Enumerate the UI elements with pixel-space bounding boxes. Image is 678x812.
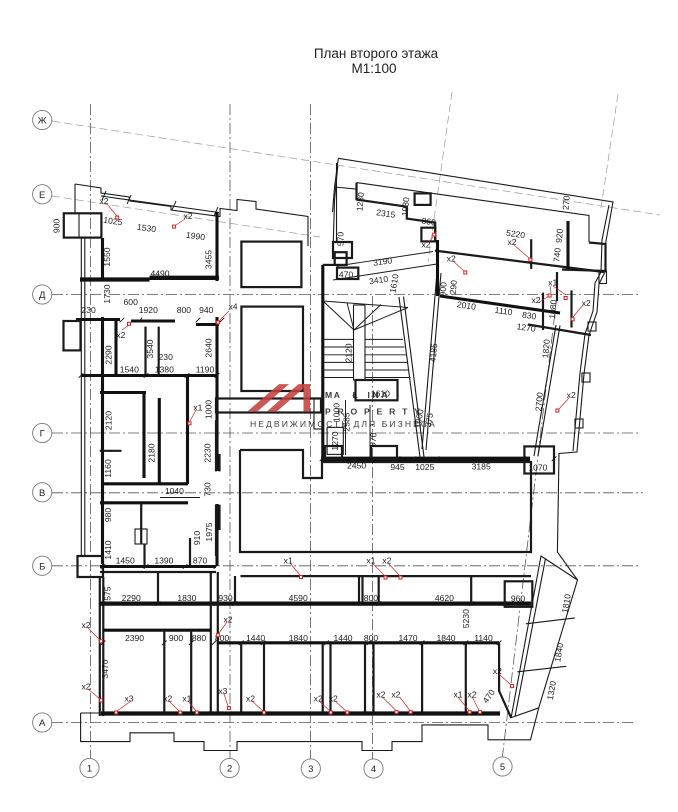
svg-text:2230: 2230 [203, 443, 213, 462]
svg-text:М1:100: М1:100 [351, 61, 396, 76]
svg-text:1470: 1470 [398, 633, 417, 643]
svg-text:x2: x2 [582, 298, 591, 308]
svg-text:1160: 1160 [103, 459, 113, 478]
svg-text:1280: 1280 [354, 192, 366, 212]
svg-text:PROPERTY: PROPERTY [325, 406, 427, 416]
svg-text:x2: x2 [246, 693, 255, 703]
svg-text:900: 900 [51, 219, 61, 234]
svg-text:800: 800 [177, 305, 192, 315]
svg-text:1380: 1380 [155, 365, 174, 375]
svg-text:1550: 1550 [102, 247, 112, 266]
svg-text:740: 740 [551, 247, 562, 262]
svg-text:4490: 4490 [150, 269, 169, 279]
svg-text:910: 910 [192, 531, 202, 546]
svg-text:А: А [39, 718, 46, 729]
svg-text:1820: 1820 [540, 339, 552, 359]
svg-text:900: 900 [169, 633, 184, 643]
svg-text:x2: x2 [223, 615, 232, 625]
svg-text:Е: Е [39, 190, 45, 201]
svg-text:920: 920 [554, 228, 565, 243]
svg-text:1390: 1390 [154, 556, 173, 566]
svg-text:1440: 1440 [246, 633, 265, 643]
svg-text:x2: x2 [567, 390, 576, 400]
svg-text:970: 970 [367, 432, 378, 447]
svg-text:НЕДВИЖИМОСТЬ ДЛЯ БИЗНЕСА: НЕДВИЖИМОСТЬ ДЛЯ БИЗНЕСА [250, 419, 437, 429]
svg-text:x2: x2 [329, 693, 338, 703]
svg-text:1040: 1040 [165, 486, 184, 496]
svg-text:1930: 1930 [400, 197, 412, 217]
svg-text:1025: 1025 [415, 462, 434, 472]
svg-text:3540: 3540 [145, 339, 155, 358]
svg-text:980: 980 [103, 508, 113, 523]
svg-text:1080: 1080 [547, 299, 559, 319]
svg-text:2700: 2700 [533, 392, 545, 412]
svg-text:880: 880 [192, 633, 207, 643]
svg-text:x2: x2 [447, 253, 456, 263]
svg-text:5: 5 [500, 762, 505, 773]
svg-text:x2: x2 [421, 240, 430, 250]
svg-text:1440: 1440 [333, 633, 352, 643]
svg-text:x2: x2 [376, 689, 385, 699]
svg-text:x2: x2 [116, 330, 125, 340]
svg-text:2: 2 [227, 764, 232, 775]
svg-text:x1: x1 [284, 556, 293, 566]
svg-text:2390: 2390 [125, 633, 144, 643]
svg-text:MA: MA [325, 390, 342, 400]
svg-text:1190: 1190 [196, 365, 215, 375]
svg-text:470: 470 [339, 270, 354, 280]
svg-text:5230: 5230 [461, 609, 471, 628]
svg-text:2450: 2450 [347, 461, 366, 471]
svg-text:x2: x2 [391, 689, 400, 699]
svg-text:x2: x2 [81, 681, 90, 691]
svg-text:x1: x1 [548, 278, 557, 288]
svg-text:x1: x1 [453, 689, 462, 699]
svg-text:860: 860 [421, 216, 437, 228]
svg-text:800: 800 [364, 633, 379, 643]
svg-text:2290: 2290 [122, 593, 141, 603]
svg-text:4590: 4590 [289, 593, 308, 603]
svg-text:870: 870 [193, 556, 208, 566]
svg-text:x2: x2 [99, 196, 108, 206]
svg-text:Д: Д [39, 290, 46, 301]
svg-text:x2: x2 [81, 620, 90, 630]
svg-text:x4: x4 [228, 302, 237, 312]
svg-text:3: 3 [308, 764, 313, 775]
svg-text:x1: x1 [366, 556, 375, 566]
svg-text:План второго этажа: План второго этажа [314, 46, 439, 61]
svg-text:1000: 1000 [204, 400, 214, 419]
svg-text:600: 600 [124, 297, 139, 307]
svg-text:В: В [39, 488, 45, 499]
svg-text:960: 960 [511, 594, 526, 604]
svg-text:4: 4 [371, 764, 376, 775]
svg-text:230: 230 [81, 305, 96, 315]
svg-text:x1: x1 [193, 403, 202, 413]
svg-text:x1: x1 [182, 693, 191, 703]
svg-text:x3: x3 [124, 693, 133, 703]
svg-text:945: 945 [390, 462, 405, 472]
svg-text:2120: 2120 [344, 343, 354, 362]
svg-text:x3: x3 [218, 686, 227, 696]
svg-text:x2: x2 [184, 211, 193, 221]
svg-text:290: 290 [448, 279, 459, 294]
svg-text:4185: 4185 [428, 343, 440, 363]
svg-text:x2: x2 [163, 693, 172, 703]
svg-text:x2: x2 [382, 556, 391, 566]
svg-text:1410: 1410 [103, 540, 113, 559]
svg-text:1920: 1920 [139, 305, 158, 315]
svg-text:Г: Г [40, 429, 45, 440]
svg-text:INA: INA [368, 390, 391, 400]
svg-text:x2: x2 [493, 666, 502, 676]
svg-text:4620: 4620 [435, 593, 454, 603]
svg-text:2120: 2120 [104, 411, 114, 430]
svg-text:1975: 1975 [204, 522, 214, 541]
svg-text:3470: 3470 [100, 659, 110, 678]
svg-text:730: 730 [203, 482, 213, 497]
svg-text:x2: x2 [507, 237, 516, 247]
svg-text:1540: 1540 [120, 365, 139, 375]
svg-text:930: 930 [218, 593, 233, 603]
svg-text:1270: 1270 [330, 431, 340, 450]
svg-text:1: 1 [87, 764, 92, 775]
svg-text:3185: 3185 [472, 462, 491, 472]
svg-text:940: 940 [199, 305, 214, 315]
svg-text:1830: 1830 [177, 593, 196, 603]
svg-text:x2: x2 [531, 295, 540, 305]
svg-text:Б: Б [39, 561, 45, 572]
svg-text:x2: x2 [468, 689, 477, 699]
svg-text:1070: 1070 [528, 462, 547, 472]
svg-text:2180: 2180 [147, 443, 157, 462]
svg-text:x2: x2 [314, 693, 323, 703]
svg-text:1450: 1450 [116, 556, 135, 566]
svg-text:1840: 1840 [289, 633, 308, 643]
svg-text:1730: 1730 [102, 284, 112, 303]
svg-text:270: 270 [561, 195, 572, 210]
svg-text:Ж: Ж [38, 116, 47, 127]
svg-text:1140: 1140 [474, 633, 493, 643]
svg-text:2290: 2290 [104, 345, 114, 364]
svg-text:Ł: Ł [353, 390, 358, 400]
svg-text:2640: 2640 [204, 338, 214, 357]
svg-text:230: 230 [159, 352, 174, 362]
svg-text:3455: 3455 [204, 250, 214, 269]
svg-text:570: 570 [336, 232, 346, 247]
svg-text:800: 800 [364, 593, 379, 603]
svg-text:1840: 1840 [436, 633, 455, 643]
svg-text:830: 830 [521, 310, 537, 322]
